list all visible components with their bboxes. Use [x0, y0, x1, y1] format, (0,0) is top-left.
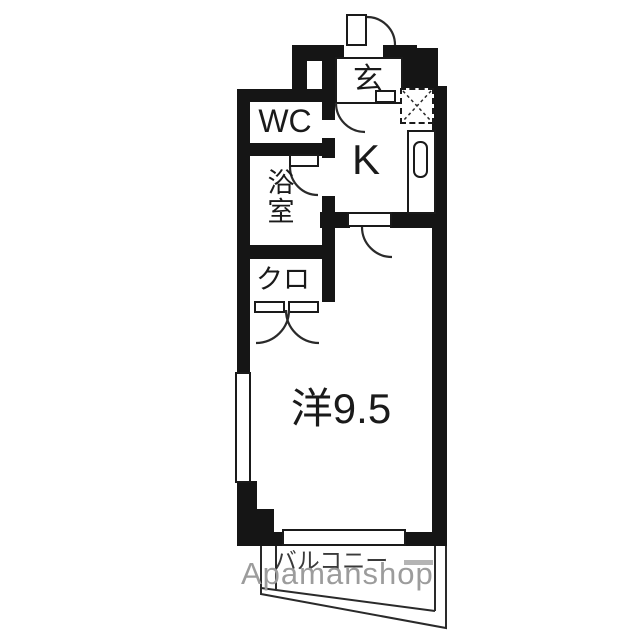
entrance-door-swing-arc [367, 17, 395, 45]
wc-label: WC [258, 105, 311, 137]
closet-door-swing-arc-right [286, 310, 319, 343]
genkan-label: 玄 [353, 65, 383, 95]
kitchen-door-swing-arc [362, 227, 392, 257]
closet-door-swing-arc-left [256, 310, 289, 343]
watermark-dash [404, 560, 433, 565]
floorplan-canvas: 玄 WC K 浴 室 クロ 洋9.5 バルコニー Apamanshop [0, 0, 640, 640]
hall-door-swing-arc [336, 103, 365, 132]
refrigerator-cross-hatch [403, 91, 431, 121]
closet-label: クロ [256, 267, 310, 294]
main-room-label: 洋9.5 [291, 388, 391, 430]
door-swings-and-balcony [0, 0, 640, 640]
bathroom-label-char2: 室 [268, 199, 295, 226]
bathroom-label: 浴 室 [268, 170, 295, 226]
kitchen-label: K [352, 139, 380, 181]
bathroom-label-char1: 浴 [268, 170, 295, 197]
